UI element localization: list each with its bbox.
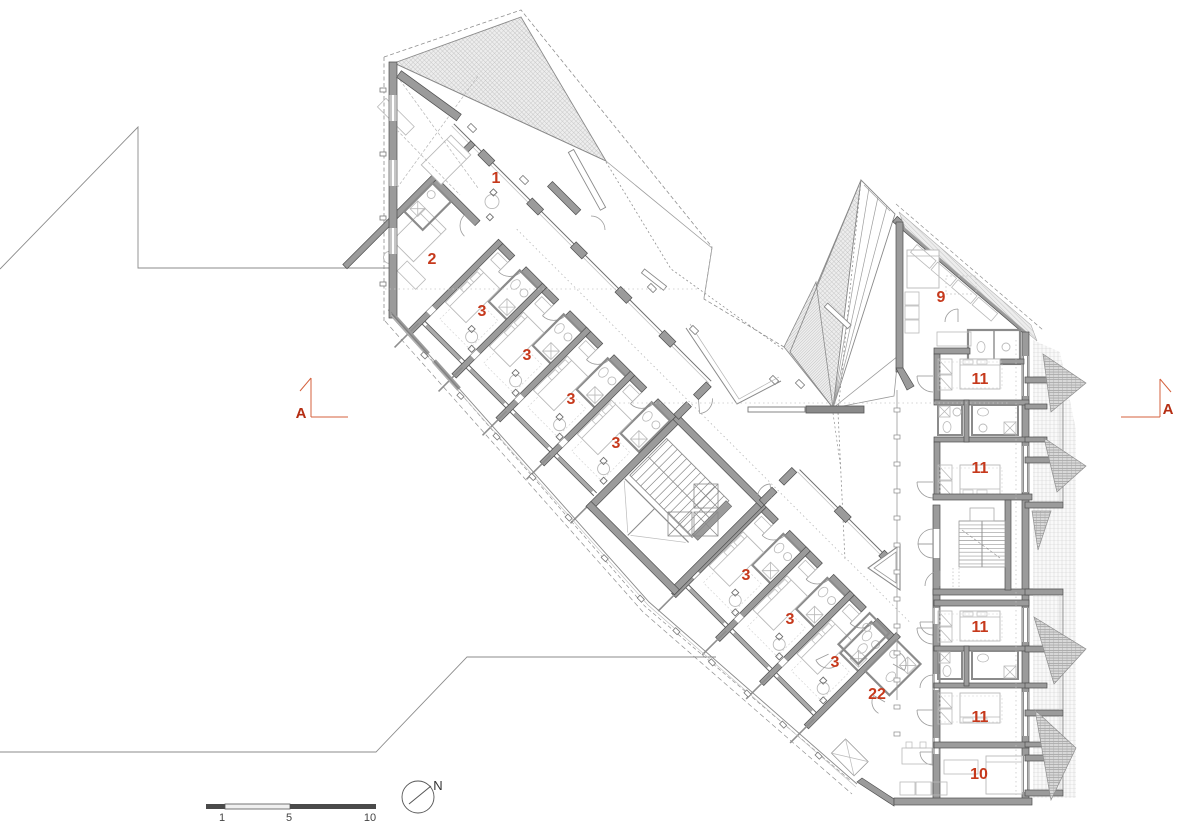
- svg-text:2: 2: [428, 251, 437, 268]
- svg-text:11: 11: [972, 619, 989, 636]
- svg-text:5: 5: [286, 812, 292, 824]
- svg-text:9: 9: [937, 289, 946, 306]
- svg-text:N: N: [433, 778, 442, 793]
- svg-text:10: 10: [970, 766, 988, 783]
- svg-text:3: 3: [567, 391, 576, 408]
- svg-text:11: 11: [972, 709, 989, 726]
- svg-text:3: 3: [742, 567, 751, 584]
- svg-text:3: 3: [523, 347, 532, 364]
- svg-text:1: 1: [219, 812, 225, 824]
- svg-text:A: A: [1163, 401, 1174, 418]
- svg-text:3: 3: [612, 435, 621, 452]
- svg-text:11: 11: [972, 371, 989, 388]
- svg-text:1: 1: [492, 170, 501, 187]
- svg-text:A: A: [296, 405, 307, 422]
- svg-text:3: 3: [478, 303, 487, 320]
- svg-text:3: 3: [786, 611, 795, 628]
- svg-text:10: 10: [364, 812, 376, 824]
- svg-text:22: 22: [868, 686, 886, 703]
- svg-text:11: 11: [972, 460, 989, 477]
- svg-text:3: 3: [831, 654, 840, 671]
